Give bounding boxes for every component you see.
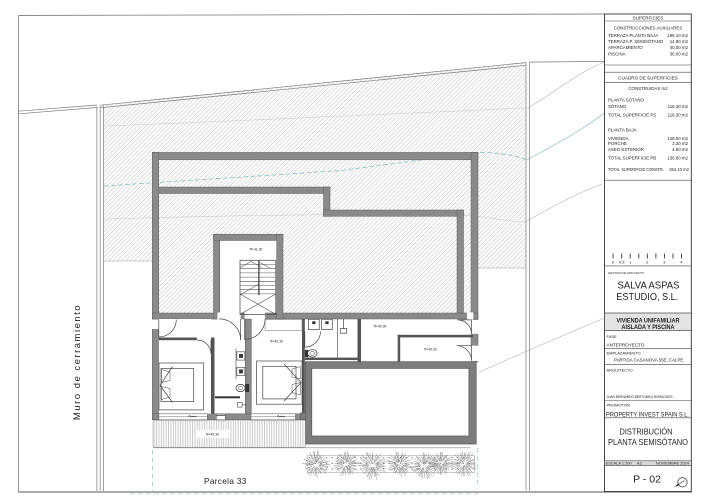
svg-text:EMPLAZAMIENTO: EMPLAZAMIENTO [607, 351, 641, 356]
svg-text:CONSTRUIDAS m2: CONSTRUIDAS m2 [628, 86, 668, 91]
svg-text:PLANTA SEMISÓTANO: PLANTA SEMISÓTANO [608, 437, 688, 447]
svg-text:PLANTA SÓTANO: PLANTA SÓTANO [608, 98, 645, 103]
svg-text:264.10 m2: 264.10 m2 [669, 167, 689, 172]
svg-text:14.90 m2: 14.90 m2 [670, 39, 689, 44]
svg-text:40.00 m2: 40.00 m2 [670, 45, 689, 50]
svg-text:3.30 m2: 3.30 m2 [672, 141, 688, 146]
svg-text:∇+40.30: ∇+40.30 [423, 348, 437, 352]
svg-text:PISCINA: PISCINA [608, 52, 626, 57]
svg-text:ANTEPROYECTO: ANTEPROYECTO [607, 342, 645, 347]
svg-text:0.5: 0.5 [619, 260, 625, 265]
svg-text:4.50 m2: 4.50 m2 [672, 147, 688, 152]
svg-text:118.30 m2: 118.30 m2 [668, 113, 689, 118]
svg-text:∇+41.30: ∇+41.30 [249, 248, 263, 252]
svg-text:TOTAL SUPERFICIE PS: TOTAL SUPERFICIE PS [608, 113, 656, 118]
svg-text:SALVA ASPAS: SALVA ASPAS [618, 280, 680, 291]
svg-text:136.80 m2: 136.80 m2 [667, 155, 688, 160]
svg-text:PLANTA BAJA: PLANTA BAJA [608, 128, 637, 133]
svg-text:TOTAL SUPERFICIE CONSTR.: TOTAL SUPERFICIE CONSTR. [608, 167, 664, 172]
svg-text:∇+40.30: ∇+40.30 [205, 433, 219, 437]
svg-text:GESTIÓN DE PROYECTO: GESTIÓN DE PROYECTO [608, 270, 645, 275]
svg-text:CONSTRUCCIONES AUXILIARES: CONSTRUCCIONES AUXILIARES [614, 26, 683, 31]
svg-text:NOVIEMBRE 2024: NOVIEMBRE 2024 [656, 461, 690, 466]
svg-text:N: N [675, 485, 677, 489]
svg-text:A2: A2 [637, 461, 642, 466]
svg-text:ASEO EXTERIOR: ASEO EXTERIOR [608, 147, 644, 152]
svg-text:ARQUITECTO: ARQUITECTO [607, 367, 633, 372]
svg-text:Parcela 33: Parcela 33 [204, 476, 247, 486]
svg-text:118.30 m2: 118.30 m2 [668, 104, 689, 109]
svg-text:PROMOTOR: PROMOTOR [607, 402, 631, 407]
svg-text:P - 02: P - 02 [633, 474, 661, 486]
svg-text:PORCHE: PORCHE [608, 141, 627, 146]
svg-text:PROPERTY INVEST SPAIN S.L.: PROPERTY INVEST SPAIN S.L. [606, 411, 689, 418]
svg-text:TERRAZA P. SEMISÓTANO: TERRAZA P. SEMISÓTANO [608, 39, 664, 44]
svg-text:Muro de cerramiento: Muro de cerramiento [72, 304, 83, 420]
svg-text:FASE: FASE [607, 334, 618, 339]
svg-text:APARCAMIENTO: APARCAMIENTO [608, 45, 643, 50]
svg-text:∇+40.30: ∇+40.30 [269, 339, 283, 343]
svg-text:SUPERFICIES: SUPERFICIES [633, 15, 664, 20]
svg-text:ESTUDIO, S.L.: ESTUDIO, S.L. [616, 292, 678, 303]
svg-text:JUAN BERNARDO BERTOMEU MORAGUE: JUAN BERNARDO BERTOMEU MORAGUES [607, 394, 673, 399]
svg-text:DISTRIBUCIÓN: DISTRIBUCIÓN [620, 426, 673, 436]
svg-text:ESCALA 1:100: ESCALA 1:100 [606, 461, 633, 466]
svg-text:AISLADA Y PISCINA: AISLADA Y PISCINA [622, 324, 675, 331]
svg-text:36.00 m2: 36.00 m2 [670, 52, 689, 57]
svg-text:∇+40.30: ∇+40.30 [373, 324, 387, 328]
svg-text:PARTIDA CASANOVA 55E, CALPE: PARTIDA CASANOVA 55E, CALPE [614, 357, 683, 362]
svg-text:196.10 m2: 196.10 m2 [667, 33, 688, 38]
svg-text:CUADRO DE SUPERFICIES: CUADRO DE SUPERFICIES [618, 76, 677, 81]
svg-text:TERRAZA PLANTA BAJA: TERRAZA PLANTA BAJA [608, 33, 658, 38]
svg-text:TOTAL SUPERFICIE PB: TOTAL SUPERFICIE PB [608, 155, 656, 160]
svg-text:SÓTANO: SÓTANO [608, 104, 627, 109]
